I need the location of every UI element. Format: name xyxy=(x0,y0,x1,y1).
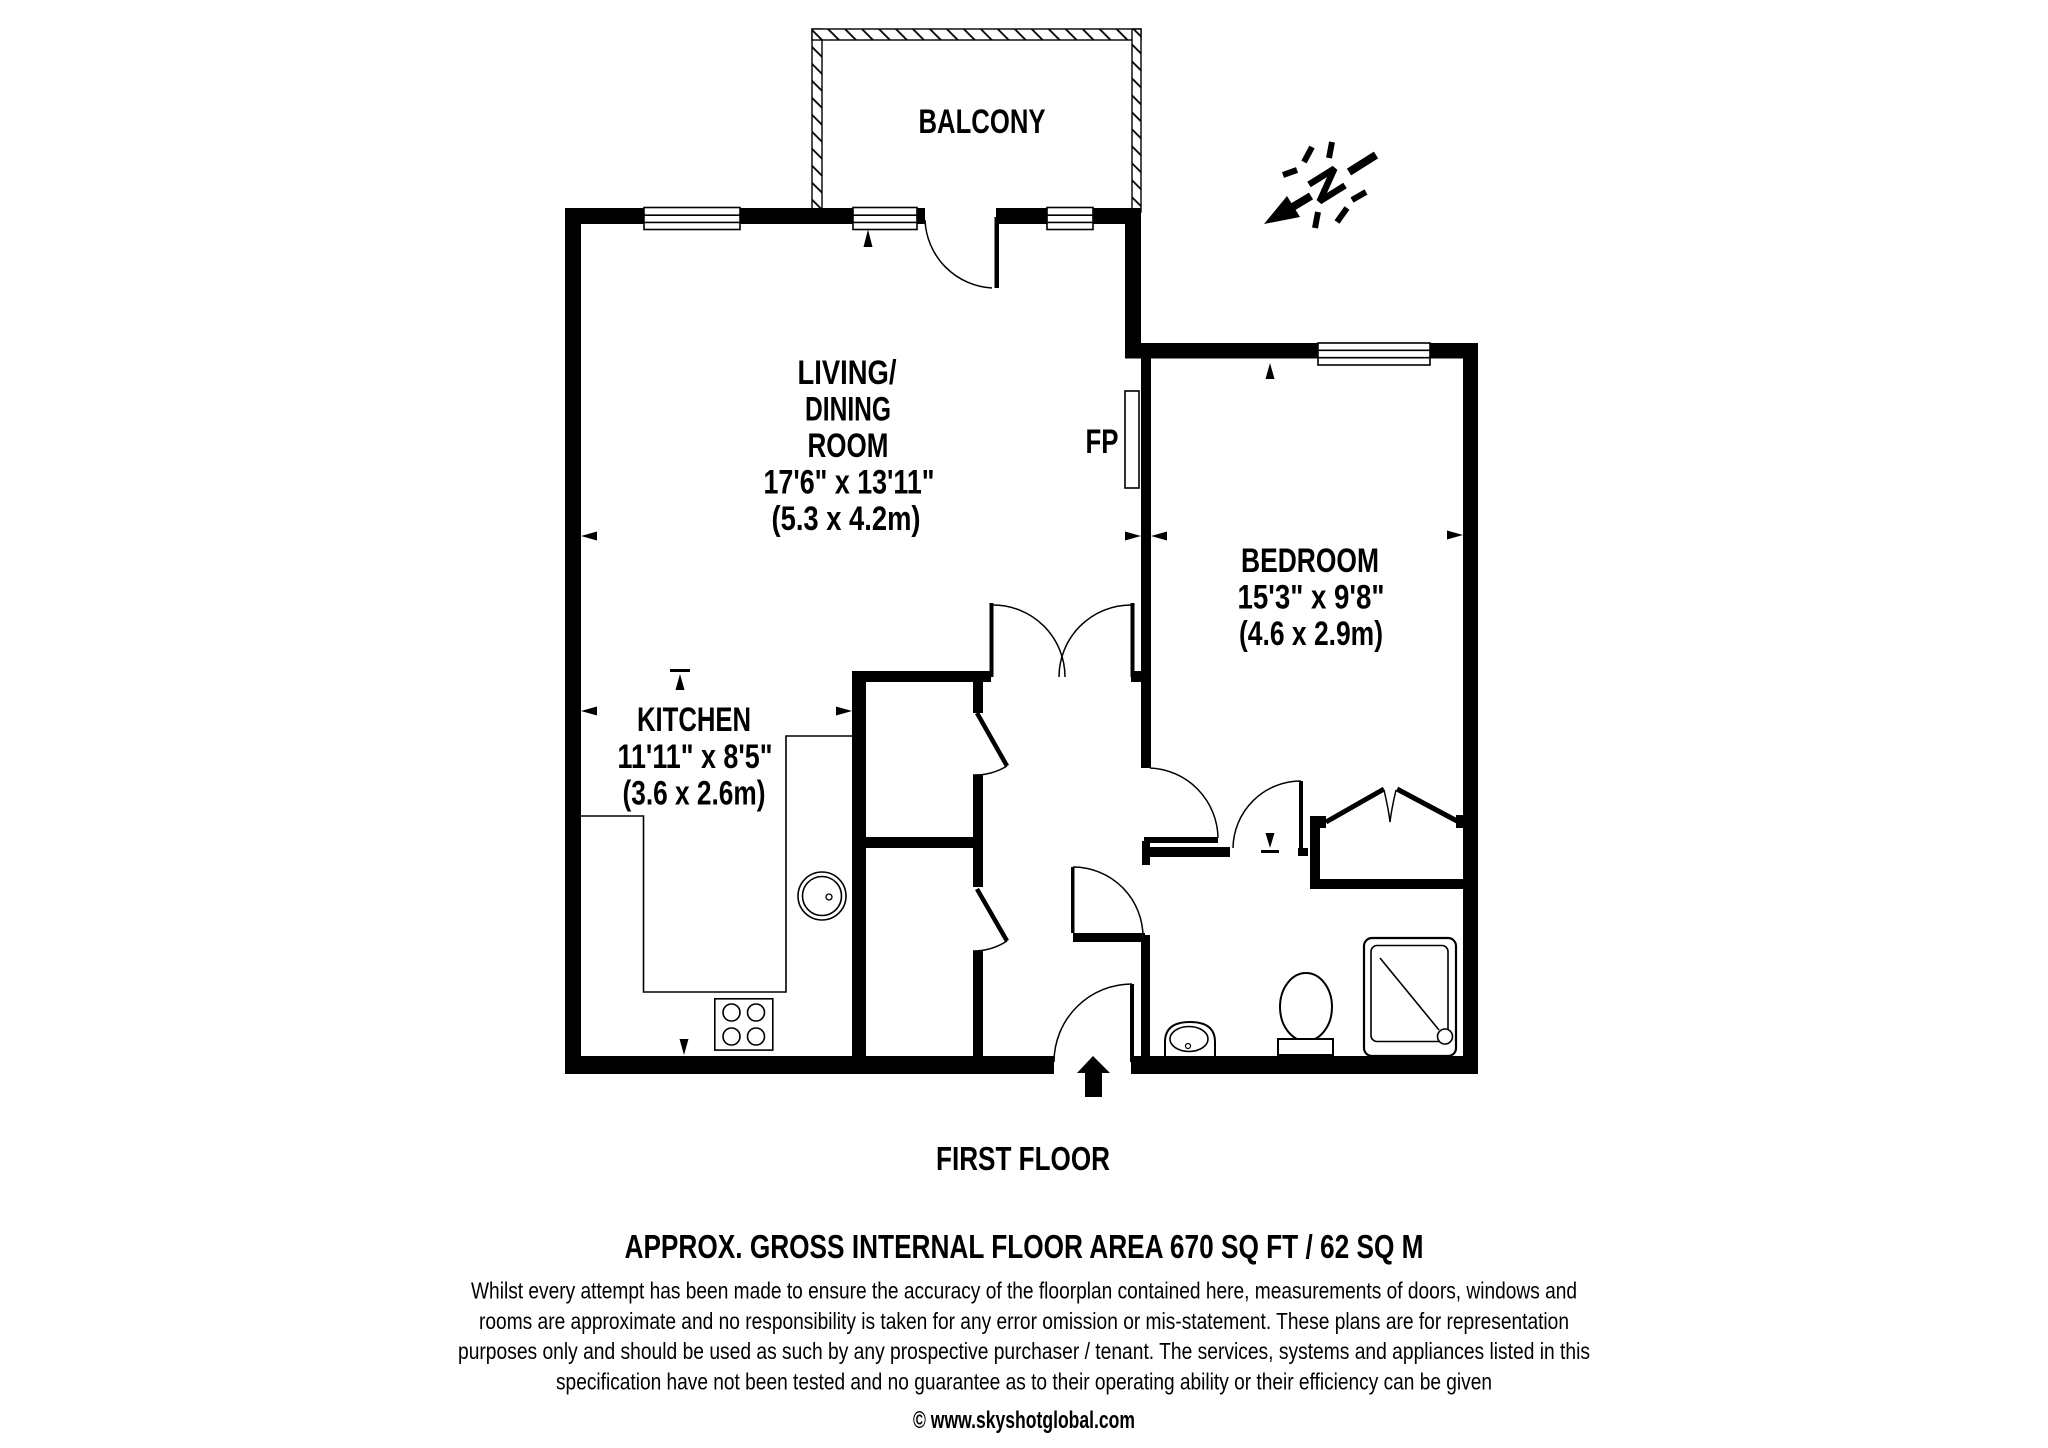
svg-text:APPROX. GROSS INTERNAL FLOOR A: APPROX. GROSS INTERNAL FLOOR AREA 670 SQ… xyxy=(625,1228,1424,1265)
svg-text:ROOM: ROOM xyxy=(808,427,889,465)
svg-text:purposes only and should be u: purposes only and should be used as such… xyxy=(458,1338,1590,1364)
svg-text:(5.3 x 4.2m): (5.3 x 4.2m) xyxy=(772,500,921,538)
svg-text:15'3" x 9'8": 15'3" x 9'8" xyxy=(1238,579,1385,617)
svg-text:LIVING/: LIVING/ xyxy=(798,354,897,392)
svg-text:DINING: DINING xyxy=(805,391,891,429)
svg-text:rooms are approximate and no r: rooms are approximate and no responsibil… xyxy=(479,1308,1569,1334)
svg-text:Whilst every attempt has been: Whilst every attempt has been made to en… xyxy=(471,1278,1577,1304)
svg-text:© www.skyshotglobal.com: © www.skyshotglobal.com xyxy=(913,1407,1135,1434)
svg-text:17'6" x 13'11": 17'6" x 13'11" xyxy=(764,464,935,502)
svg-text:FP: FP xyxy=(1086,423,1119,461)
svg-text:11'11" x 8'5": 11'11" x 8'5" xyxy=(618,738,773,776)
svg-text:specification have not been te: specification have not been tested and n… xyxy=(556,1368,1492,1394)
svg-text:(3.6 x 2.6m): (3.6 x 2.6m) xyxy=(623,775,766,813)
svg-text:BEDROOM: BEDROOM xyxy=(1241,542,1379,580)
svg-text:FIRST FLOOR: FIRST FLOOR xyxy=(936,1140,1110,1177)
svg-text:KITCHEN: KITCHEN xyxy=(637,701,751,739)
svg-text:(4.6 x 2.9m): (4.6 x 2.9m) xyxy=(1239,615,1383,653)
svg-text:BALCONY: BALCONY xyxy=(919,103,1046,141)
